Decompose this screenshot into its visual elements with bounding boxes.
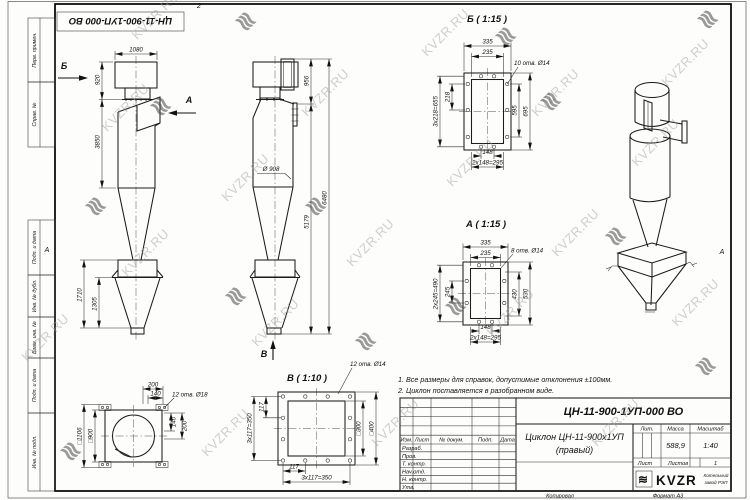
col-list: Лист (414, 438, 430, 444)
detail-b-dim-235: 235 (481, 49, 493, 56)
sheets-value: 1 (714, 461, 717, 467)
margin-label-vzam-inv: Взам. инв. № (32, 321, 38, 354)
detail-b-dim-695: 695 (523, 106, 530, 117)
detail-v-holes-note: 12 отв. Ø14 (350, 361, 386, 368)
dim-920: 920 (95, 74, 102, 85)
col-doc: № докум. (439, 438, 464, 444)
fold-mark-right: А (719, 249, 725, 256)
margin-label-inv-dubl: Инв. № дубл. (32, 280, 38, 313)
dim-1710: 1710 (77, 288, 84, 302)
dim-5179: 5179 (304, 215, 311, 229)
detail-a-dim-530: 530 (523, 288, 530, 299)
sheet-label: Лист (637, 461, 653, 467)
dim-1305: 1305 (92, 297, 99, 311)
drawing-canvas: 2 А А Перв. примен. Справ. № Подп. и дат… (0, 0, 750, 500)
margin-label-sprav-no: Справ. № (32, 102, 38, 126)
stamp-designation: ЦН-11-900-1УП-000 ВО (564, 406, 684, 418)
plan-dim-sq900: □900 (88, 428, 95, 443)
col-data: Дата (499, 438, 515, 444)
row-nachotd: Нач.отд. (402, 469, 426, 475)
fold-mark-left: А (44, 247, 50, 254)
row-prov: Пров. (402, 454, 417, 460)
detail-b-title: Б ( 1:15 ) (467, 14, 507, 25)
detail-a-view: А ( 1:15 ) 335 235 245 2х245=490 430 530… (433, 219, 544, 345)
fold-mark-top: 2 (196, 3, 201, 10)
detail-a-dim-235: 235 (479, 250, 491, 257)
dim-1080: 1080 (129, 47, 143, 54)
note-line-2: 2. Циклон поставляется в разобранном вид… (397, 386, 554, 395)
below-frame-labels: Копировал Формат А3 (546, 494, 684, 500)
detail-a-title: А ( 1:15 ) (465, 219, 506, 230)
detail-v-title: В ( 1:10 ) (287, 373, 327, 384)
detail-v-dim-sq400: □400 (369, 421, 376, 436)
plan-dim-sq1106: □1106 (77, 427, 84, 445)
detail-a-dim-148: 148 (480, 324, 491, 331)
copied-label: Копировал (546, 494, 575, 500)
dim-956: 956 (304, 75, 311, 86)
detail-b-dim-148: 148 (482, 149, 493, 156)
plan-dim-140-right: 140 (171, 416, 178, 427)
plan-dim-140-top: 140 (150, 391, 161, 398)
margin-label-podp-data-1: Подп. и дата (32, 231, 38, 264)
detail-a-dim-335: 335 (480, 240, 491, 247)
margin-column: Перв. примен. Справ. № Подп. и дата Инв.… (28, 18, 55, 491)
scale-label: Масштаб (697, 427, 724, 433)
stamp-name-line1: Циклон ЦН-11-900х1УП (525, 432, 624, 442)
margin-label-podp-data-2: Подп. и дата (32, 369, 38, 402)
row-utv: Утв. (401, 485, 415, 491)
dim-diameter-908: Ø 908 (262, 166, 280, 173)
logo-subtitle-1: Котельный (704, 472, 729, 478)
mass-value: 588,9 (666, 441, 686, 450)
detail-b-dim-335: 335 (482, 39, 493, 46)
dim-3850: 3850 (95, 135, 102, 149)
mass-label: Масса (667, 427, 684, 433)
detail-b-holes-note: 10 отв. Ø14 (514, 60, 550, 67)
detail-v-dim-117-left: 117 (259, 402, 266, 412)
logo-subtitle-2: завод РЭП (704, 480, 729, 485)
pl an-view: 200 140 12 отв. Ø18 □1106 □900 140 200 (77, 382, 209, 468)
drawing-sheet: 2 А А Перв. примен. Справ. № Подп. и дат… (0, 0, 750, 500)
detail-a-chain-left: 2х245=490 (433, 278, 440, 310)
detail-b-dim-218: 218 (445, 91, 452, 103)
col-podp: Подп. (478, 438, 493, 444)
kvzr-logo-text: KVZR (656, 473, 697, 488)
detail-v-chain-left: 3х117=350 (247, 413, 254, 444)
view-arrow-a-label: А (185, 95, 193, 105)
detail-v-dim-sq300: □300 (356, 421, 363, 436)
detail-a-dim-430: 430 (512, 289, 519, 300)
view-arrow-b-label: Б (61, 61, 68, 71)
plan-holes-note: 12 отв. Ø18 (172, 392, 208, 399)
detail-b-dim-595: 595 (512, 105, 519, 116)
side-view: 1080 920 3850 1710 1305 Б А (58, 47, 196, 343)
detail-b-chain-left: 3х218=655 (433, 96, 440, 127)
detail-v-chain-bottom: 3х117=350 (301, 475, 332, 482)
detail-a-chain-bottom: 2х148=295 (469, 335, 501, 342)
stamp-name-line2: (правый) (556, 445, 593, 455)
kvzr-logo-icon: ≋ (638, 473, 648, 487)
detail-a-holes-note: 8 отв. Ø14 (511, 248, 544, 255)
title-block: Изм. Лист № докум. Подп. Дата Разраб. Пр… (400, 398, 731, 491)
scale-value: 1:40 (703, 441, 718, 450)
isometric-view (606, 83, 697, 313)
top-designation-box: ЦН-11-900-1УП-000 ВО (57, 12, 184, 31)
dim-6480: 6480 (322, 191, 329, 205)
sheets-label: Листов (667, 461, 688, 467)
margin-label-inv-podl: Инв. № подл. (32, 436, 38, 469)
row-tkontr: Т. контр. (402, 462, 426, 468)
note-line-1: 1. Все размеры для справок, допустимые о… (398, 375, 612, 384)
view-arrow-v-label: В (261, 349, 268, 359)
margin-label-perv-primen: Перв. примен. (32, 32, 38, 67)
detail-a-dim-245: 245 (445, 286, 452, 298)
col-izm: Изм. (401, 438, 413, 444)
lit-label: Лит. (639, 427, 653, 433)
detail-v-view: В ( 1:10 ) 117 3х117=350 117 3х117=350 □… (247, 361, 387, 485)
detail-b-chain-bottom: 2х148=295 (471, 160, 503, 167)
front-view: Ø 908 956 5179 6480 В (250, 56, 332, 360)
format-label: Формат А3 (653, 494, 684, 500)
plan-dim-200-right: 200 (182, 420, 189, 432)
notes: 1. Все размеры для справок, допустимые о… (397, 375, 612, 395)
plan-dim-200-top: 200 (147, 382, 159, 389)
detail-b-view: Б ( 1:15 ) 335 235 218 3х218=655 595 695… (433, 14, 551, 170)
row-razrab: Разраб. (402, 446, 422, 452)
detail-v-dim-117-bottom: 117 (289, 464, 299, 471)
top-designation-text: ЦН-11-900-1УП-000 ВО (68, 15, 172, 26)
row-nkontr: Н. контр. (402, 477, 427, 483)
